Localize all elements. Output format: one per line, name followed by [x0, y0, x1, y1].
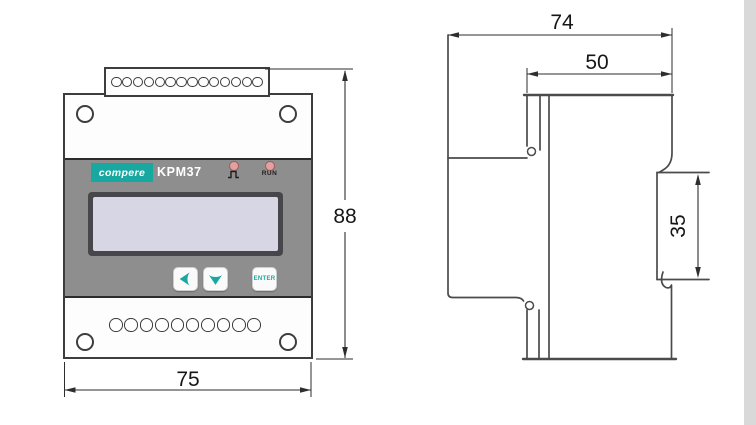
- dim-label-75: 75: [176, 368, 199, 391]
- dim-label-74: 74: [550, 11, 574, 34]
- dim-label-88: 88: [333, 205, 356, 228]
- dim-rail-35: 35: [667, 174, 701, 278]
- dim-width-75: 75: [65, 362, 312, 397]
- drawing-lines: 88 75: [0, 0, 756, 425]
- dim-height-88: 88: [265, 69, 357, 359]
- dim-body-50: 50: [527, 51, 672, 93]
- technical-drawing: compere KPM37 RUN ENTER: [0, 0, 756, 425]
- dim-depth-74: 74: [448, 11, 672, 93]
- dim-label-35: 35: [667, 214, 690, 237]
- side-view-profile: [448, 35, 709, 359]
- page-edge-strip: [744, 0, 756, 425]
- dim-label-50: 50: [585, 51, 608, 74]
